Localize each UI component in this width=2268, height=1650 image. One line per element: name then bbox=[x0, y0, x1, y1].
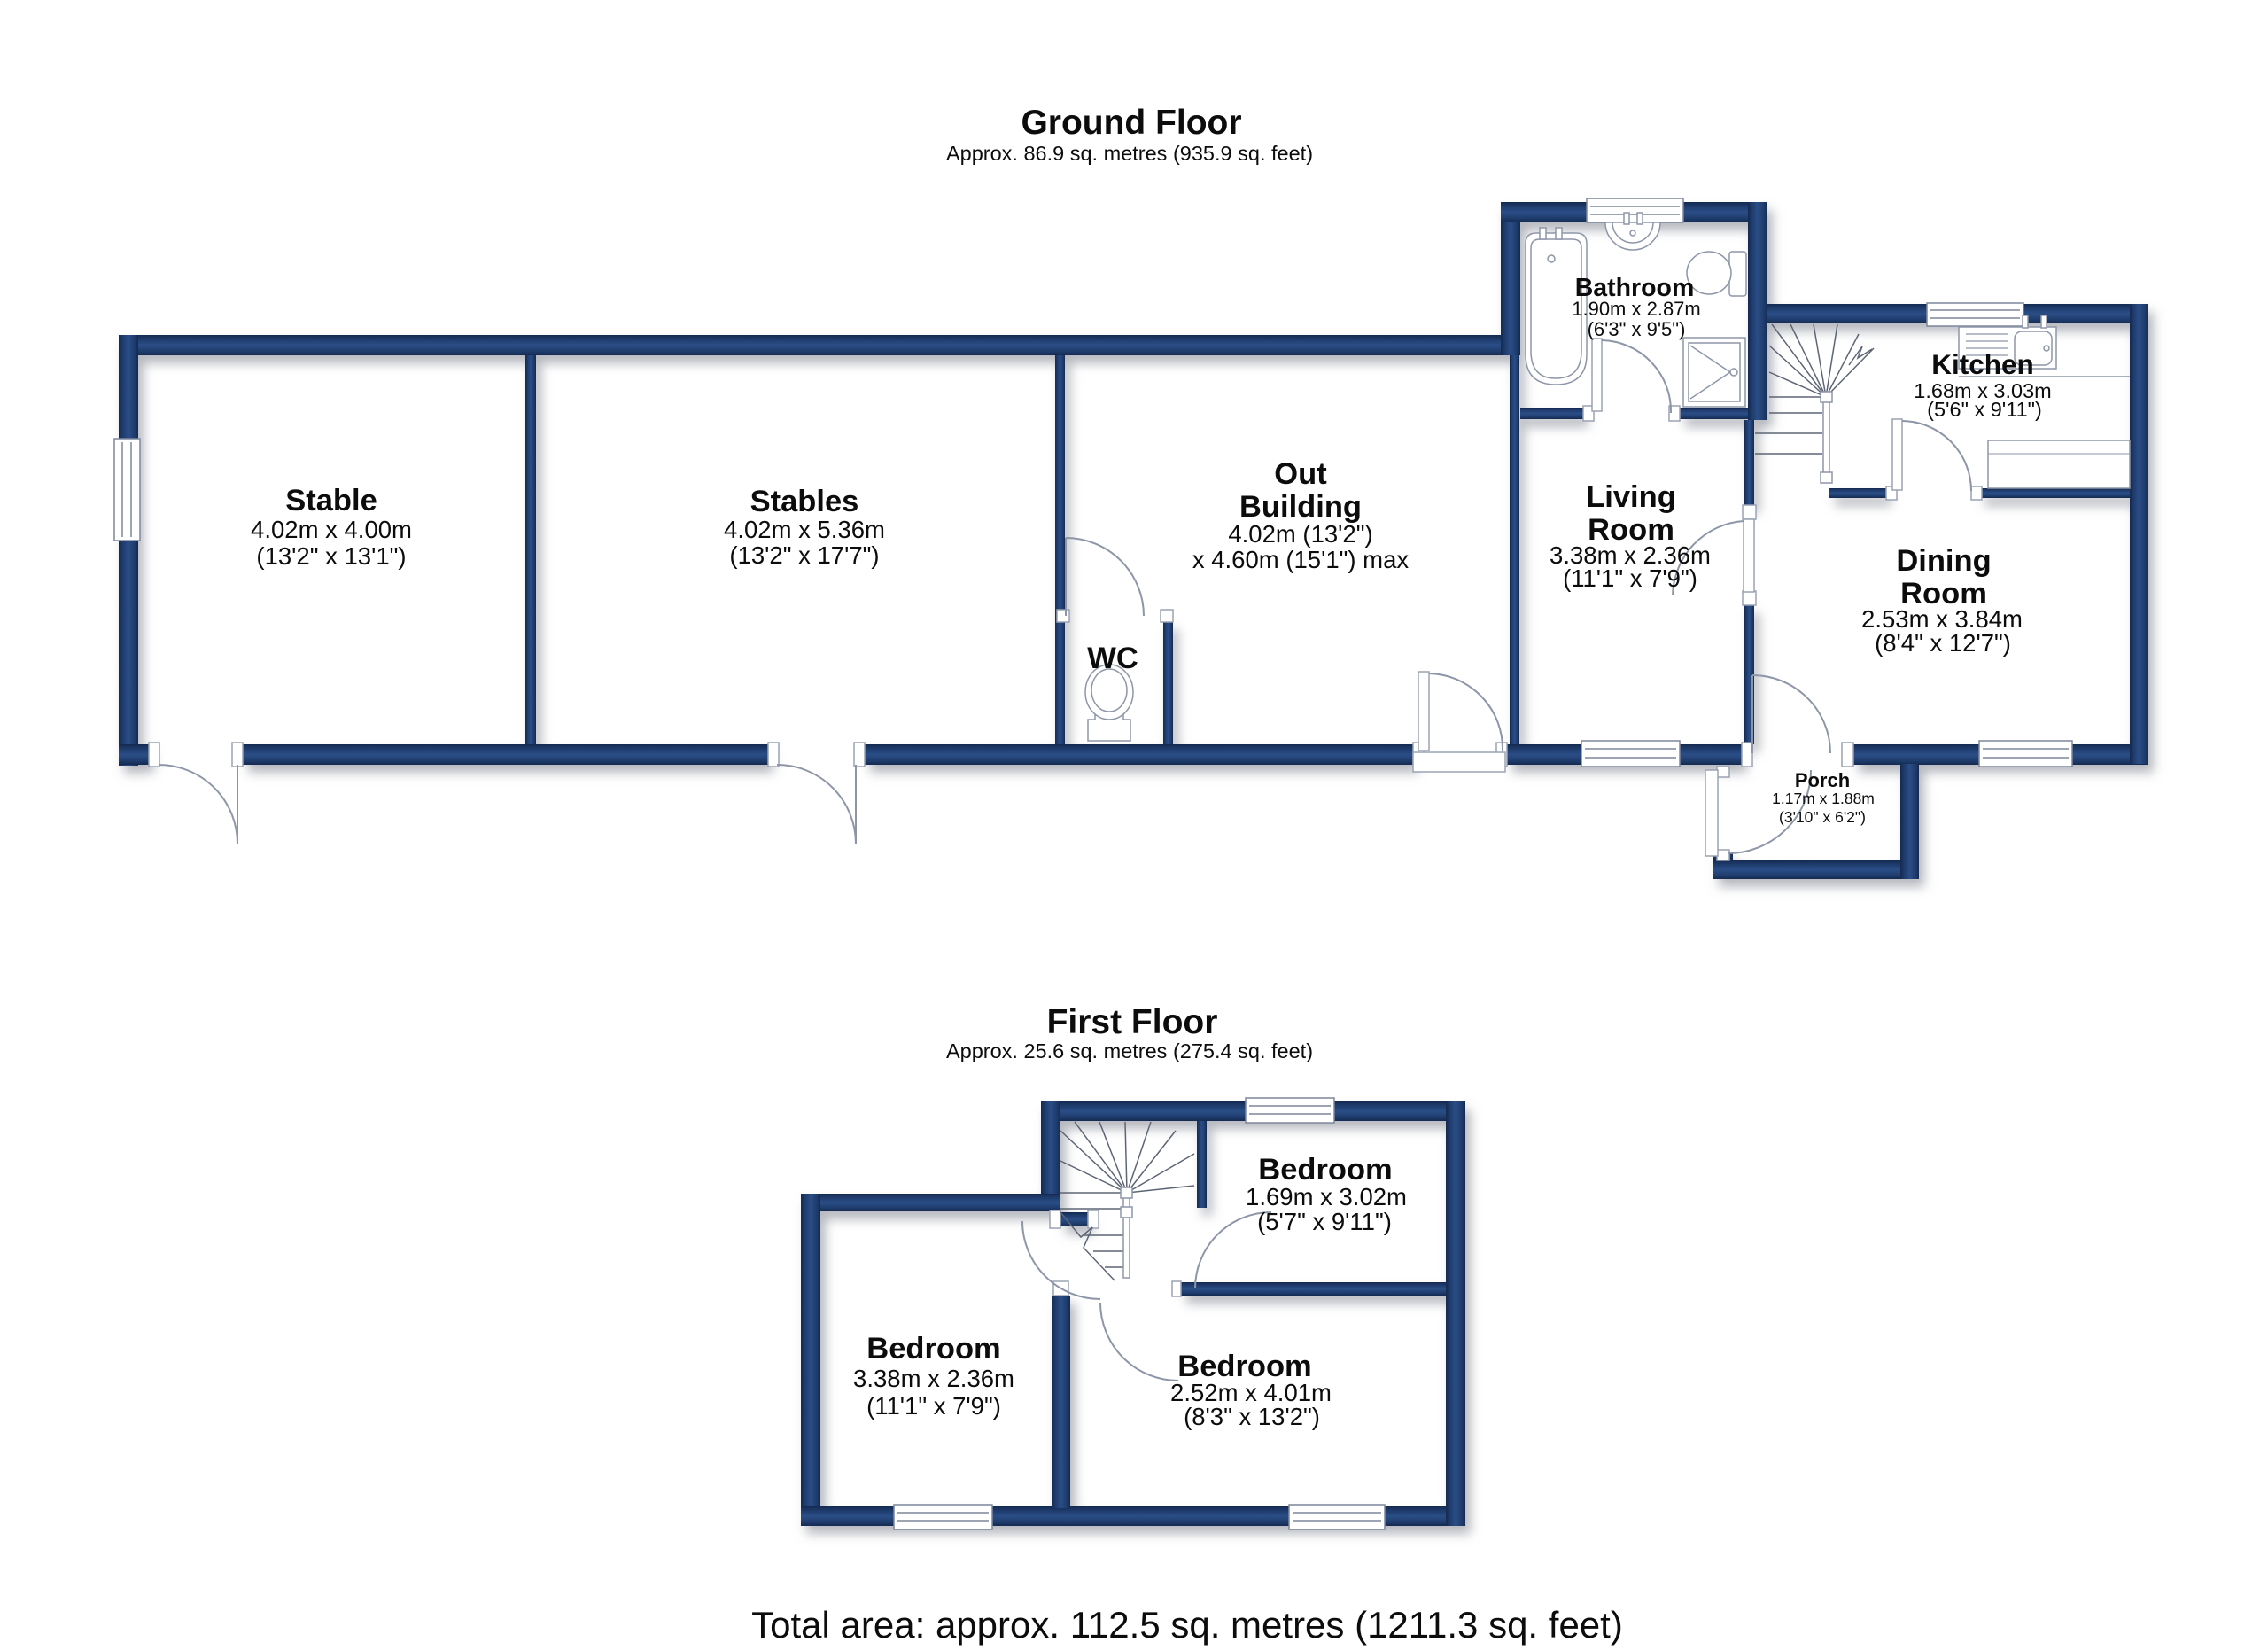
svg-text:(3'10" x 6'2"): (3'10" x 6'2") bbox=[1779, 808, 1866, 826]
svg-text:1.90m x 2.87m: 1.90m x 2.87m bbox=[1572, 298, 1701, 320]
svg-text:(11'1" x 7'9"): (11'1" x 7'9") bbox=[1563, 564, 1697, 592]
svg-text:(13'2" x 13'1"): (13'2" x 13'1") bbox=[256, 542, 406, 570]
svg-text:Stable: Stable bbox=[285, 484, 377, 518]
svg-text:Stables: Stables bbox=[750, 485, 859, 518]
svg-text:x 4.60m (15'1") max: x 4.60m (15'1") max bbox=[1192, 546, 1410, 573]
svg-text:(8'3" x 13'2"): (8'3" x 13'2") bbox=[1184, 1403, 1320, 1430]
svg-text:4.02m x 5.36m: 4.02m x 5.36m bbox=[724, 516, 885, 543]
svg-text:1.17m x 1.88m: 1.17m x 1.88m bbox=[1772, 790, 1875, 807]
svg-text:Approx. 86.9 sq. metres (935.9: Approx. 86.9 sq. metres (935.9 sq. feet) bbox=[946, 142, 1313, 165]
svg-text:Bedroom: Bedroom bbox=[866, 1332, 1000, 1366]
svg-text:Living: Living bbox=[1586, 480, 1676, 514]
svg-text:(5'7" x 9'11"): (5'7" x 9'11") bbox=[1257, 1208, 1392, 1235]
svg-text:Kitchen: Kitchen bbox=[1931, 348, 2034, 380]
svg-text:4.02m x 4.00m: 4.02m x 4.00m bbox=[251, 516, 412, 543]
svg-text:First Floor: First Floor bbox=[1047, 1003, 1218, 1041]
svg-text:(11'1" x 7'9"): (11'1" x 7'9") bbox=[866, 1392, 1001, 1420]
svg-text:1.69m x 3.02m: 1.69m x 3.02m bbox=[1246, 1183, 1407, 1210]
svg-text:(5'6" x 9'11"): (5'6" x 9'11") bbox=[1927, 398, 2042, 421]
svg-text:(8'4" x 12'7"): (8'4" x 12'7") bbox=[1875, 629, 2011, 657]
svg-text:Porch: Porch bbox=[1795, 769, 1850, 791]
svg-text:(13'2" x 17'7"): (13'2" x 17'7") bbox=[729, 541, 879, 569]
svg-text:WC: WC bbox=[1087, 642, 1138, 675]
svg-text:Building: Building bbox=[1239, 490, 1362, 524]
svg-text:Approx. 25.6 sq. metres (275.4: Approx. 25.6 sq. metres (275.4 sq. feet) bbox=[946, 1039, 1313, 1062]
svg-text:Out: Out bbox=[1274, 457, 1327, 491]
svg-text:Dining: Dining bbox=[1896, 544, 1991, 578]
svg-text:4.02m (13'2"): 4.02m (13'2") bbox=[1228, 520, 1372, 548]
svg-text:(6'3" x 9'5"): (6'3" x 9'5") bbox=[1588, 318, 1686, 340]
svg-text:Bedroom: Bedroom bbox=[1258, 1153, 1392, 1187]
svg-text:3.38m x 2.36m: 3.38m x 2.36m bbox=[853, 1365, 1014, 1392]
svg-text:Ground Floor: Ground Floor bbox=[1021, 104, 1241, 142]
svg-text:Total area: approx. 112.5 sq.: Total area: approx. 112.5 sq. metres (12… bbox=[751, 1604, 1623, 1646]
